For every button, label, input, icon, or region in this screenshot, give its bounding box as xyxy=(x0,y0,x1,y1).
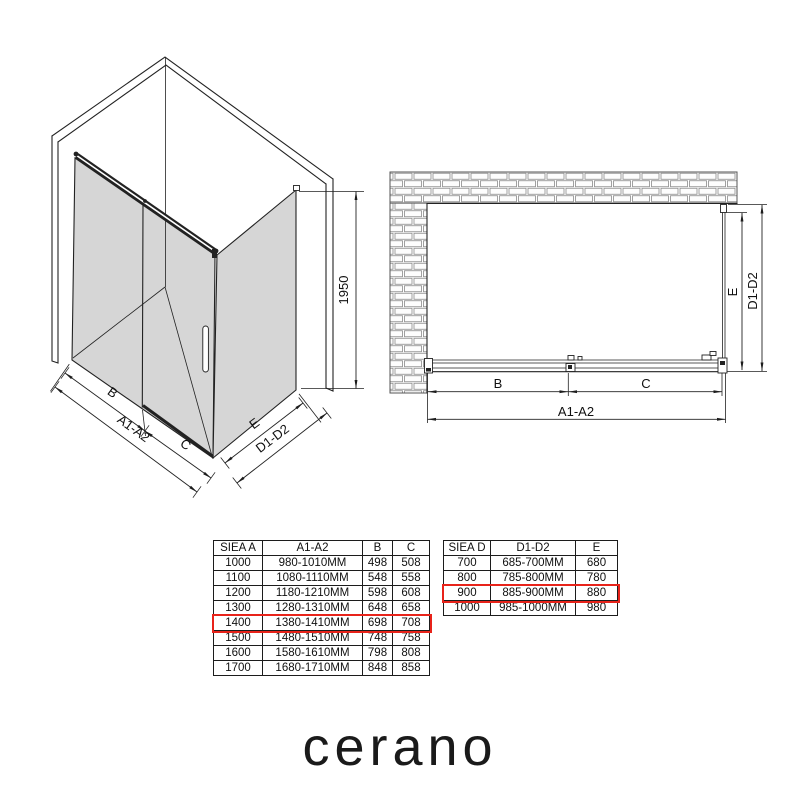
corner-post xyxy=(212,249,217,258)
door-handle xyxy=(203,326,209,372)
table-cell: 900 xyxy=(444,586,491,601)
roller-bracket-icon xyxy=(568,356,574,361)
table-cell: 508 xyxy=(393,556,430,571)
table-cell: 1100 xyxy=(214,571,263,586)
plan-dim-label-d1d2: D1-D2 xyxy=(745,272,760,310)
table-row: 13001280-1310MM648658 xyxy=(214,601,430,616)
table-header-cell: C xyxy=(393,541,430,556)
table-header-cell: SIEA A xyxy=(214,541,263,556)
table-header-cell: A1-A2 xyxy=(263,541,363,556)
table-cell: 1280-1310MM xyxy=(263,601,363,616)
table-cell: 1000 xyxy=(444,601,491,616)
table-cell: 598 xyxy=(363,586,393,601)
table-header-cell: SIEA D xyxy=(444,541,491,556)
plan-dimensions: B C A1-A2 E D1-D2 xyxy=(428,205,768,424)
table-cell: 1700 xyxy=(214,661,263,676)
table-cell: 1380-1410MM xyxy=(263,616,363,631)
sliding-rail xyxy=(425,352,728,374)
brick-wall-left xyxy=(390,203,427,393)
table-cell: 685-700MM xyxy=(491,556,576,571)
table-cell: 1400 xyxy=(214,616,263,631)
table-cell: 808 xyxy=(393,646,430,661)
table-cell: 980 xyxy=(576,601,618,616)
table-cell: 798 xyxy=(363,646,393,661)
table-row: 12001180-1210MM598608 xyxy=(214,586,430,601)
table-cell: 880 xyxy=(576,586,618,601)
table-cell: 885-900MM xyxy=(491,586,576,601)
table-cell: 1180-1210MM xyxy=(263,586,363,601)
table-cell: 708 xyxy=(393,616,430,631)
table-cell: 548 xyxy=(363,571,393,586)
table-cell: 1000 xyxy=(214,556,263,571)
plan-dim-label-c: C xyxy=(641,376,650,391)
table-row: 800785-800MM780 xyxy=(444,571,618,586)
table-row: 1000980-1010MM498508 xyxy=(214,556,430,571)
table-cell: 758 xyxy=(393,631,430,646)
table-cell: 648 xyxy=(363,601,393,616)
table-cell: 985-1000MM xyxy=(491,601,576,616)
table-cell: 1600 xyxy=(214,646,263,661)
table-header-row: SIEA AA1-A2BC xyxy=(214,541,430,556)
iso-dim-label-a1a2: A1-A2 xyxy=(115,412,153,445)
plan-dim-label-e: E xyxy=(725,287,740,296)
enclosure-outline xyxy=(427,204,737,394)
table-row-highlighted: 900885-900MM880 xyxy=(444,586,618,601)
isometric-drawing: B C A1-A2 E D1-D2 1950 xyxy=(35,28,380,506)
table-row-highlighted: 14001380-1410MM698708 xyxy=(214,616,430,631)
table-cell: 680 xyxy=(576,556,618,571)
table-cell: 1080-1110MM xyxy=(263,571,363,586)
table-cell: 780 xyxy=(576,571,618,586)
table-cell: 700 xyxy=(444,556,491,571)
side-panel-wall-profile xyxy=(721,205,727,213)
table-cell: 980-1010MM xyxy=(263,556,363,571)
table-cell: 1200 xyxy=(214,586,263,601)
table-cell: 498 xyxy=(363,556,393,571)
table-cell: 608 xyxy=(393,586,430,601)
table-header-cell: E xyxy=(576,541,618,556)
table-cell: 1300 xyxy=(214,601,263,616)
table-cell: 698 xyxy=(363,616,393,631)
table-cell: 785-800MM xyxy=(491,571,576,586)
roller-icon xyxy=(143,199,147,203)
table-row: 700685-700MM680 xyxy=(444,556,618,571)
table-cell: 1500 xyxy=(214,631,263,646)
table-row: 15001480-1510MM748758 xyxy=(214,631,430,646)
table-row: 1000985-1000MM980 xyxy=(444,601,618,616)
table-cell: 658 xyxy=(393,601,430,616)
size-table-d: SIEA DD1-D2E700685-700MM680800785-800MM7… xyxy=(443,540,618,616)
plan-dim-label-b: B xyxy=(494,376,503,391)
table-cell: 1480-1510MM xyxy=(263,631,363,646)
table-header-cell: D1-D2 xyxy=(491,541,576,556)
table-cell: 858 xyxy=(393,661,430,676)
table-cell: 558 xyxy=(393,571,430,586)
table-cell: 1580-1610MM xyxy=(263,646,363,661)
table-row: 11001080-1110MM548558 xyxy=(214,571,430,586)
side-panel-wall-profile xyxy=(294,186,300,191)
size-table-a: SIEA AA1-A2BC1000980-1010MM4985081100108… xyxy=(213,540,430,676)
table-cell: 1680-1710MM xyxy=(263,661,363,676)
table-cell: 748 xyxy=(363,631,393,646)
plan-view-drawing: B C A1-A2 E D1-D2 xyxy=(385,165,780,430)
iso-dim-label-c: C xyxy=(177,436,193,454)
brand-logo: cerano xyxy=(0,716,800,778)
floor-edges xyxy=(72,158,296,458)
door-divider xyxy=(142,205,143,407)
table-cell: 848 xyxy=(363,661,393,676)
table-cell: 800 xyxy=(444,571,491,586)
table-header-row: SIEA DD1-D2E xyxy=(444,541,618,556)
table-row: 16001580-1610MM798808 xyxy=(214,646,430,661)
brick-wall-top xyxy=(390,172,737,203)
iso-dim-label-height: 1950 xyxy=(336,276,351,305)
plan-dim-label-a1a2: A1-A2 xyxy=(558,404,594,419)
table-row: 17001680-1710MM848858 xyxy=(214,661,430,676)
table-header-cell: B xyxy=(363,541,393,556)
